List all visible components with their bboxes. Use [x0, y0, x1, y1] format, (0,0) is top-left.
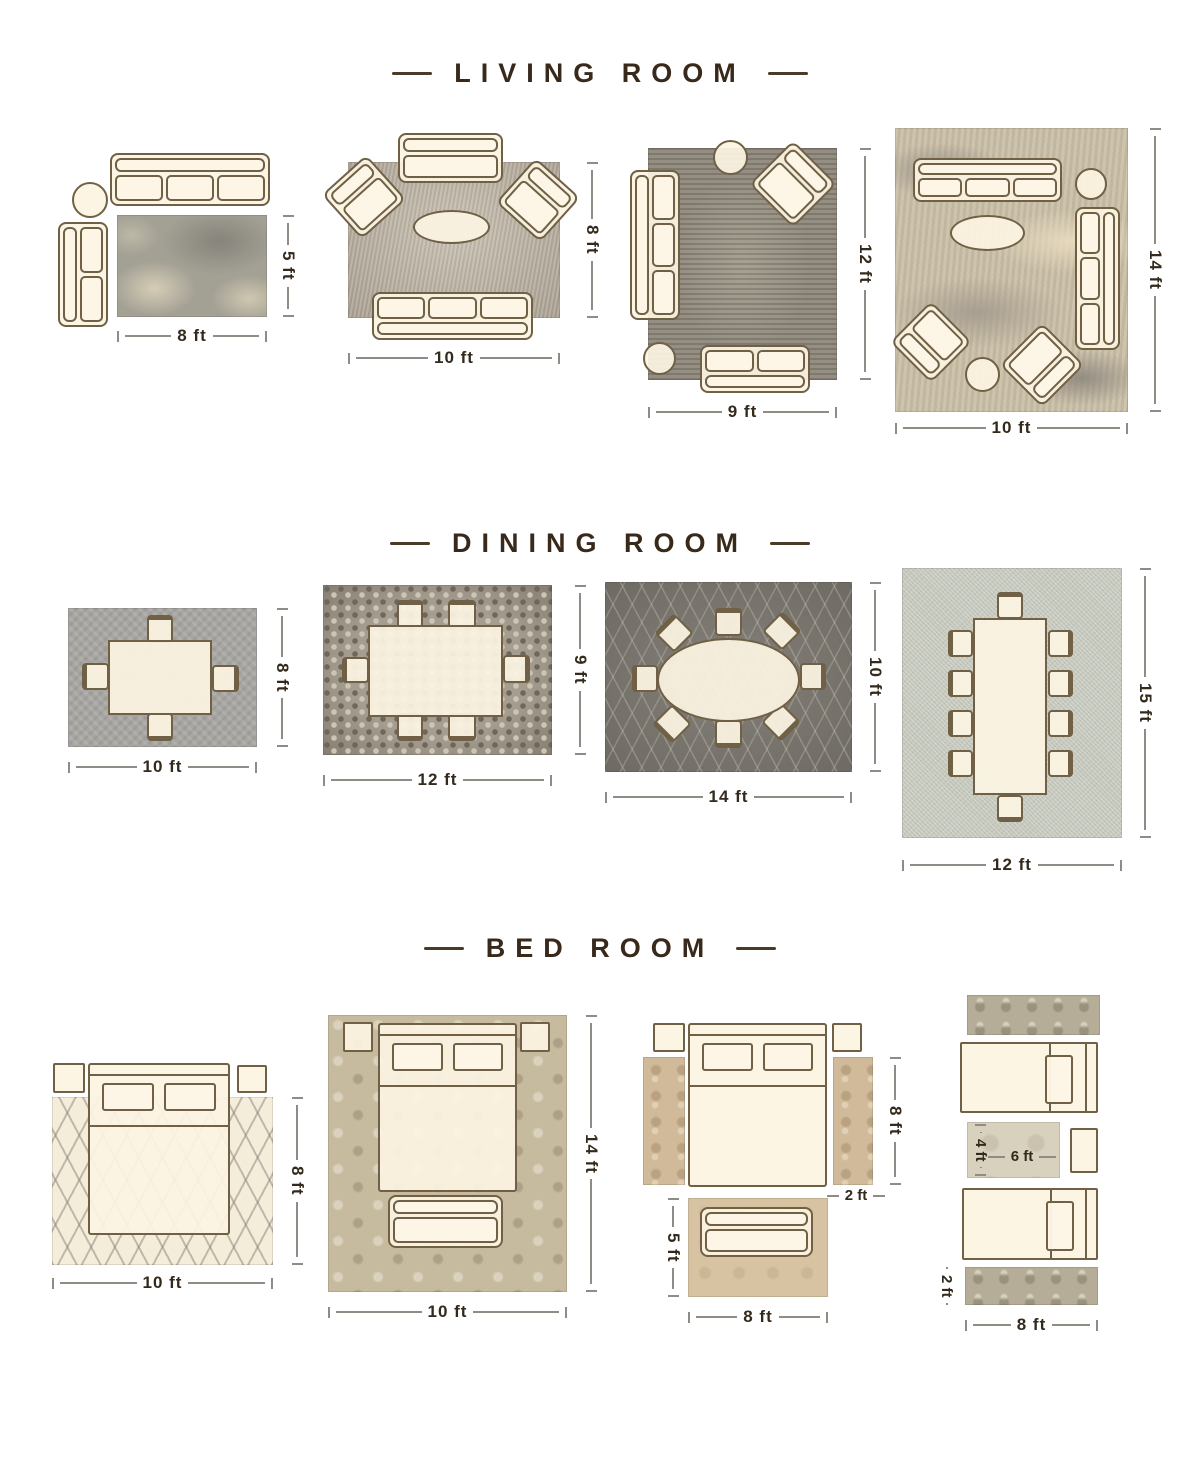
dining-table — [368, 625, 503, 717]
bed-room-layout-1: 8 ft 10 ft — [45, 1055, 310, 1305]
width-dimension: 8 ft — [117, 326, 267, 346]
chair — [147, 713, 173, 741]
section-title-living-room: LIVING ROOM — [0, 58, 1200, 89]
dining-room-title: DINING ROOM — [452, 528, 748, 559]
bed-room-layout-2: 14 ft 10 ft — [325, 1010, 605, 1325]
round-table-bottom — [965, 357, 1000, 392]
title-rule-left — [390, 542, 430, 545]
chair — [948, 710, 973, 737]
nightstand-left — [53, 1063, 85, 1093]
chair — [715, 720, 742, 748]
width-dimension: 10 ft — [348, 348, 560, 368]
section-title-dining-room: DINING ROOM — [0, 528, 1200, 559]
title-rule-left — [392, 72, 432, 75]
dining-room-layout-1: 8 ft 10 ft — [55, 595, 300, 785]
height-dimension: 8 ft — [287, 1097, 307, 1265]
width-dimension: 14 ft — [605, 787, 852, 807]
nightstand-left — [343, 1022, 373, 1052]
nightstand-right — [832, 1023, 862, 1052]
title-rule-left — [424, 947, 464, 950]
chair — [397, 600, 423, 628]
chair — [82, 663, 109, 690]
sofa-3seat — [630, 170, 680, 320]
chair — [448, 713, 476, 741]
bench-sofa — [388, 1195, 503, 1248]
loveseat — [700, 345, 810, 393]
title-rule-right — [768, 72, 808, 75]
nightstand-right — [520, 1022, 550, 1052]
title-rule-right — [770, 542, 810, 545]
living-room-layout-3: 12 ft 9 ft — [615, 130, 890, 425]
oval-coffee-table — [950, 215, 1025, 251]
bed — [378, 1023, 517, 1192]
living-room-title: LIVING ROOM — [454, 58, 746, 89]
nightstand-left — [653, 1023, 685, 1052]
chair — [632, 665, 658, 692]
height-dimension: 12 ft — [855, 148, 875, 380]
bench-sofa — [700, 1207, 813, 1257]
runner-width-dimension: 8 ft — [965, 1315, 1098, 1335]
dining-room-layout-3: 10 ft 14 ft — [600, 575, 885, 805]
living-room-layout-1: 5 ft 8 ft — [50, 130, 310, 355]
bed — [88, 1063, 230, 1235]
twin-bed-2 — [962, 1188, 1098, 1260]
twin-bed-1 — [960, 1042, 1098, 1113]
sofa-3seat-top — [913, 158, 1062, 202]
round-side-table — [72, 182, 108, 218]
dining-table — [108, 640, 212, 715]
chair — [948, 630, 973, 657]
chair — [397, 713, 423, 741]
height-dimension: 8 ft — [582, 162, 602, 318]
round-table-top — [713, 140, 748, 175]
mid-rug-height-dimension: 4 ft — [972, 1124, 989, 1176]
width-dimension: 10 ft — [68, 757, 257, 777]
rug-width-dimension: 8 ft — [688, 1307, 828, 1327]
runner-width-dimension: 2 ft — [827, 1187, 885, 1204]
height-dimension: 14 ft — [581, 1015, 601, 1292]
rug-size-guide: LIVING ROOM 5 ft 8 ft 8 ft 10 ft 12 ft 9… — [0, 0, 1200, 1467]
width-dimension: 10 ft — [328, 1302, 567, 1322]
chair — [1048, 710, 1073, 737]
chair — [212, 665, 239, 692]
rug-8x5 — [117, 215, 267, 317]
sofa-2seat — [58, 222, 108, 327]
height-dimension: 5 ft — [278, 215, 298, 317]
width-dimension: 10 ft — [895, 418, 1128, 438]
chair — [800, 663, 826, 690]
bed-room-layout-3: 8 ft 2 ft 5 ft 8 ft — [635, 1015, 915, 1330]
sofa-3seat-right — [1075, 207, 1120, 350]
nightstand-right — [237, 1065, 267, 1093]
chair — [503, 655, 530, 683]
chair — [147, 615, 173, 643]
runner-rug-bottom — [965, 1267, 1098, 1305]
width-dimension: 12 ft — [902, 855, 1122, 875]
height-dimension: 14 ft — [1145, 128, 1165, 412]
section-title-bed-room: BED ROOM — [0, 933, 1200, 964]
dining-room-layout-4: 15 ft 12 ft — [900, 565, 1165, 880]
height-dimension: 9 ft — [570, 585, 590, 755]
runner-height-dimension: 2 ft — [938, 1267, 955, 1305]
round-table-bottom — [643, 342, 676, 375]
chair — [342, 657, 369, 683]
runner-height-dimension: 8 ft — [885, 1057, 905, 1185]
sofa-3seat — [110, 153, 270, 206]
bed — [688, 1023, 827, 1187]
mid-rug-width-dimension: 6 ft — [988, 1148, 1056, 1165]
runner-rug-right — [833, 1057, 873, 1185]
chair — [997, 592, 1023, 619]
loveseat — [398, 133, 503, 183]
title-rule-right — [736, 947, 776, 950]
width-dimension: 10 ft — [52, 1273, 273, 1293]
width-dimension: 9 ft — [648, 402, 837, 422]
height-dimension: 8 ft — [272, 608, 292, 747]
chair — [448, 600, 476, 628]
round-table-top — [1075, 168, 1107, 200]
chair — [715, 608, 742, 636]
width-dimension: 12 ft — [323, 770, 552, 790]
chair — [1048, 750, 1073, 777]
bed-room-layout-4: 4 ft 6 ft 2 ft 8 ft — [930, 990, 1180, 1340]
height-dimension: 10 ft — [865, 582, 885, 772]
oval-coffee-table — [413, 210, 490, 244]
oval-dining-table — [657, 638, 800, 722]
chair — [948, 670, 973, 697]
runner-rug-top — [967, 995, 1100, 1035]
height-dimension: 15 ft — [1135, 568, 1155, 838]
dining-room-layout-2: 9 ft 12 ft — [320, 580, 585, 795]
bed-room-title: BED ROOM — [486, 933, 715, 964]
living-room-layout-2: 8 ft 10 ft — [330, 120, 620, 375]
chair — [1048, 630, 1073, 657]
chair — [948, 750, 973, 777]
chair — [997, 795, 1023, 822]
nightstand — [1070, 1128, 1098, 1173]
rug-height-dimension: 5 ft — [663, 1198, 683, 1297]
living-room-layout-4: 14 ft 10 ft — [890, 115, 1180, 450]
dining-table — [973, 618, 1047, 795]
chair — [1048, 670, 1073, 697]
runner-rug-left — [643, 1057, 685, 1185]
sofa-3seat — [372, 292, 533, 340]
